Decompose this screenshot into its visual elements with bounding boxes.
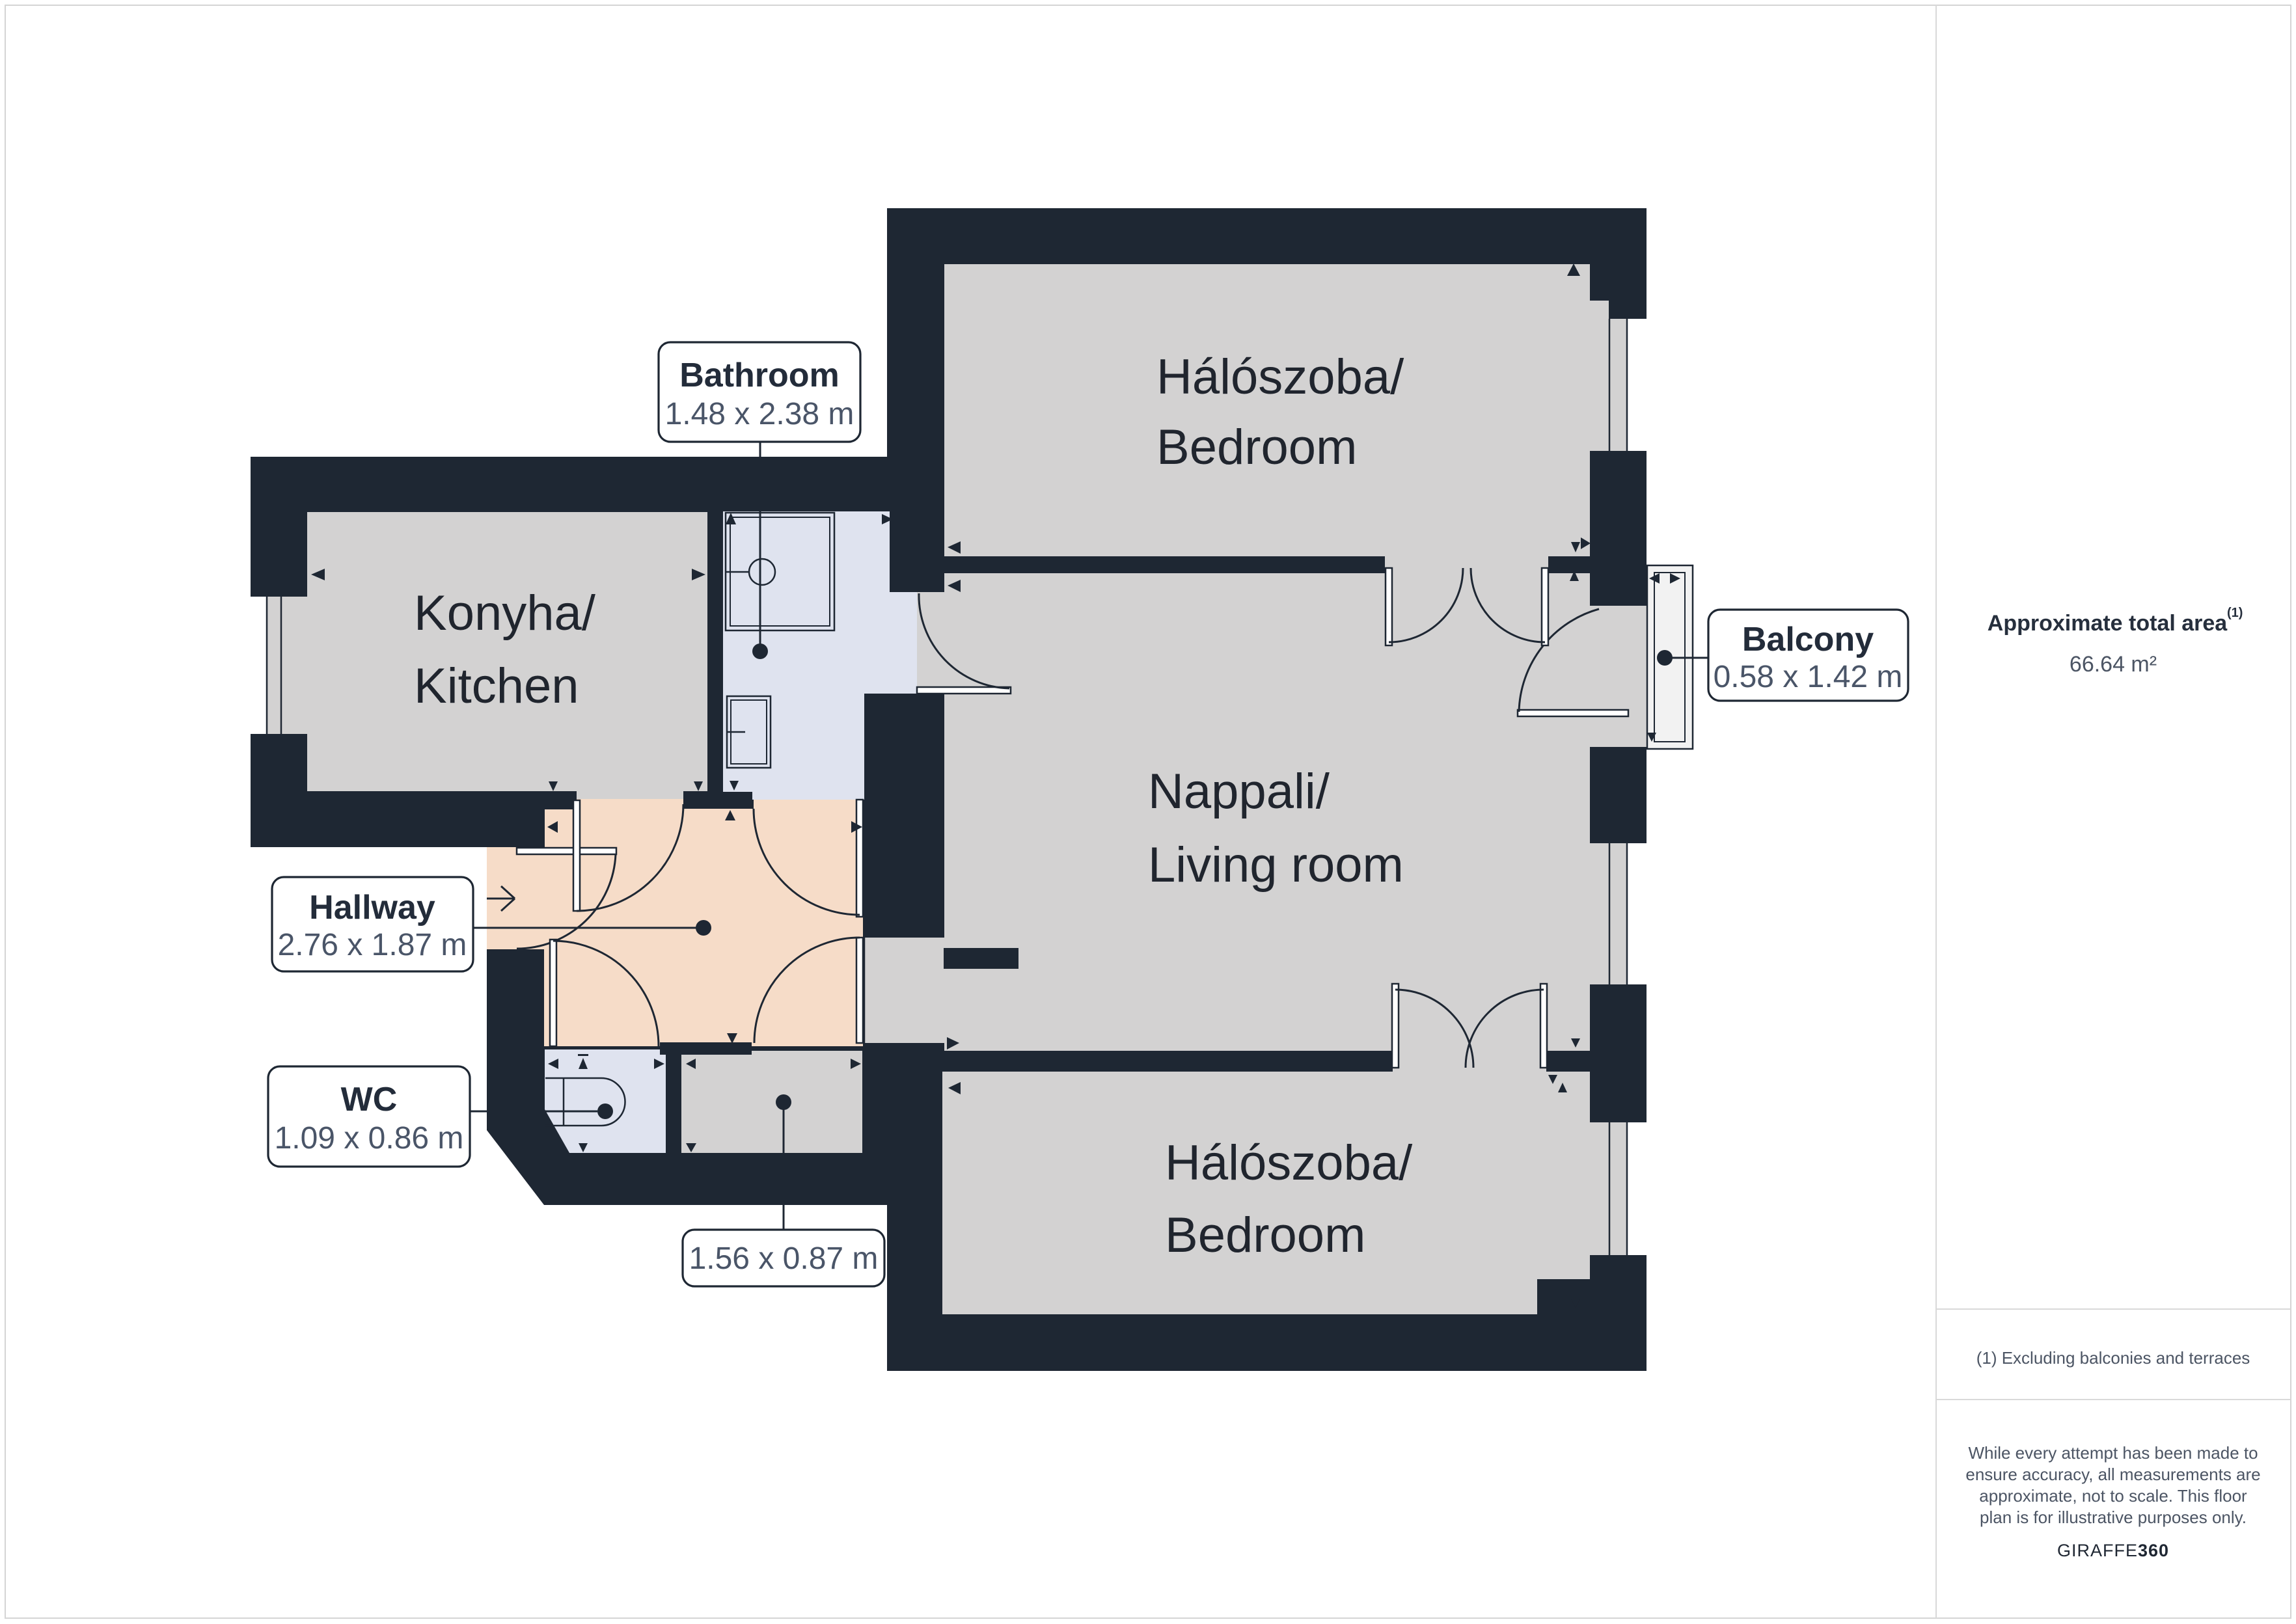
svg-text:1.09 x 0.86 m: 1.09 x 0.86 m bbox=[275, 1121, 464, 1156]
svg-text:1.56 x 0.87 m: 1.56 x 0.87 m bbox=[689, 1241, 879, 1276]
svg-text:approximate, not to scale. Thi: approximate, not to scale. This floor bbox=[1979, 1486, 2247, 1506]
svg-text:Bedroom: Bedroom bbox=[1156, 420, 1357, 475]
svg-text:Hallway: Hallway bbox=[309, 889, 435, 927]
svg-text:While every attempt has been m: While every attempt has been made to bbox=[1968, 1443, 2258, 1463]
svg-text:(1) Excluding balconies and te: (1) Excluding balconies and terraces bbox=[1976, 1348, 2250, 1368]
svg-text:66.64 m²: 66.64 m² bbox=[2070, 652, 2157, 677]
svg-text:Konyha/: Konyha/ bbox=[414, 586, 596, 641]
svg-text:ensure accuracy, all measureme: ensure accuracy, all measurements are bbox=[1965, 1465, 2260, 1484]
svg-text:plan is for illustrative purpo: plan is for illustrative purposes only. bbox=[1980, 1508, 2247, 1527]
svg-text:Hálószoba/: Hálószoba/ bbox=[1156, 349, 1404, 405]
svg-text:Approximate total area: Approximate total area bbox=[1988, 611, 2228, 636]
svg-text:Hálószoba/: Hálószoba/ bbox=[1165, 1135, 1413, 1191]
svg-text:GIRAFFE360: GIRAFFE360 bbox=[2057, 1541, 2169, 1560]
svg-text:0.58 x 1.42 m: 0.58 x 1.42 m bbox=[1714, 660, 1903, 694]
svg-text:1.48 x 2.38 m: 1.48 x 2.38 m bbox=[665, 397, 854, 431]
svg-text:2.76 x 1.87 m: 2.76 x 1.87 m bbox=[278, 928, 467, 962]
svg-text:Kitchen: Kitchen bbox=[414, 658, 579, 714]
svg-text:(1): (1) bbox=[2227, 606, 2243, 620]
svg-text:Bathroom: Bathroom bbox=[679, 357, 840, 394]
svg-text:WC: WC bbox=[341, 1081, 398, 1118]
svg-text:Nappali/: Nappali/ bbox=[1148, 764, 1330, 819]
svg-text:Living room: Living room bbox=[1148, 837, 1404, 893]
svg-text:Balcony: Balcony bbox=[1742, 621, 1874, 658]
svg-text:Bedroom: Bedroom bbox=[1165, 1208, 1365, 1263]
